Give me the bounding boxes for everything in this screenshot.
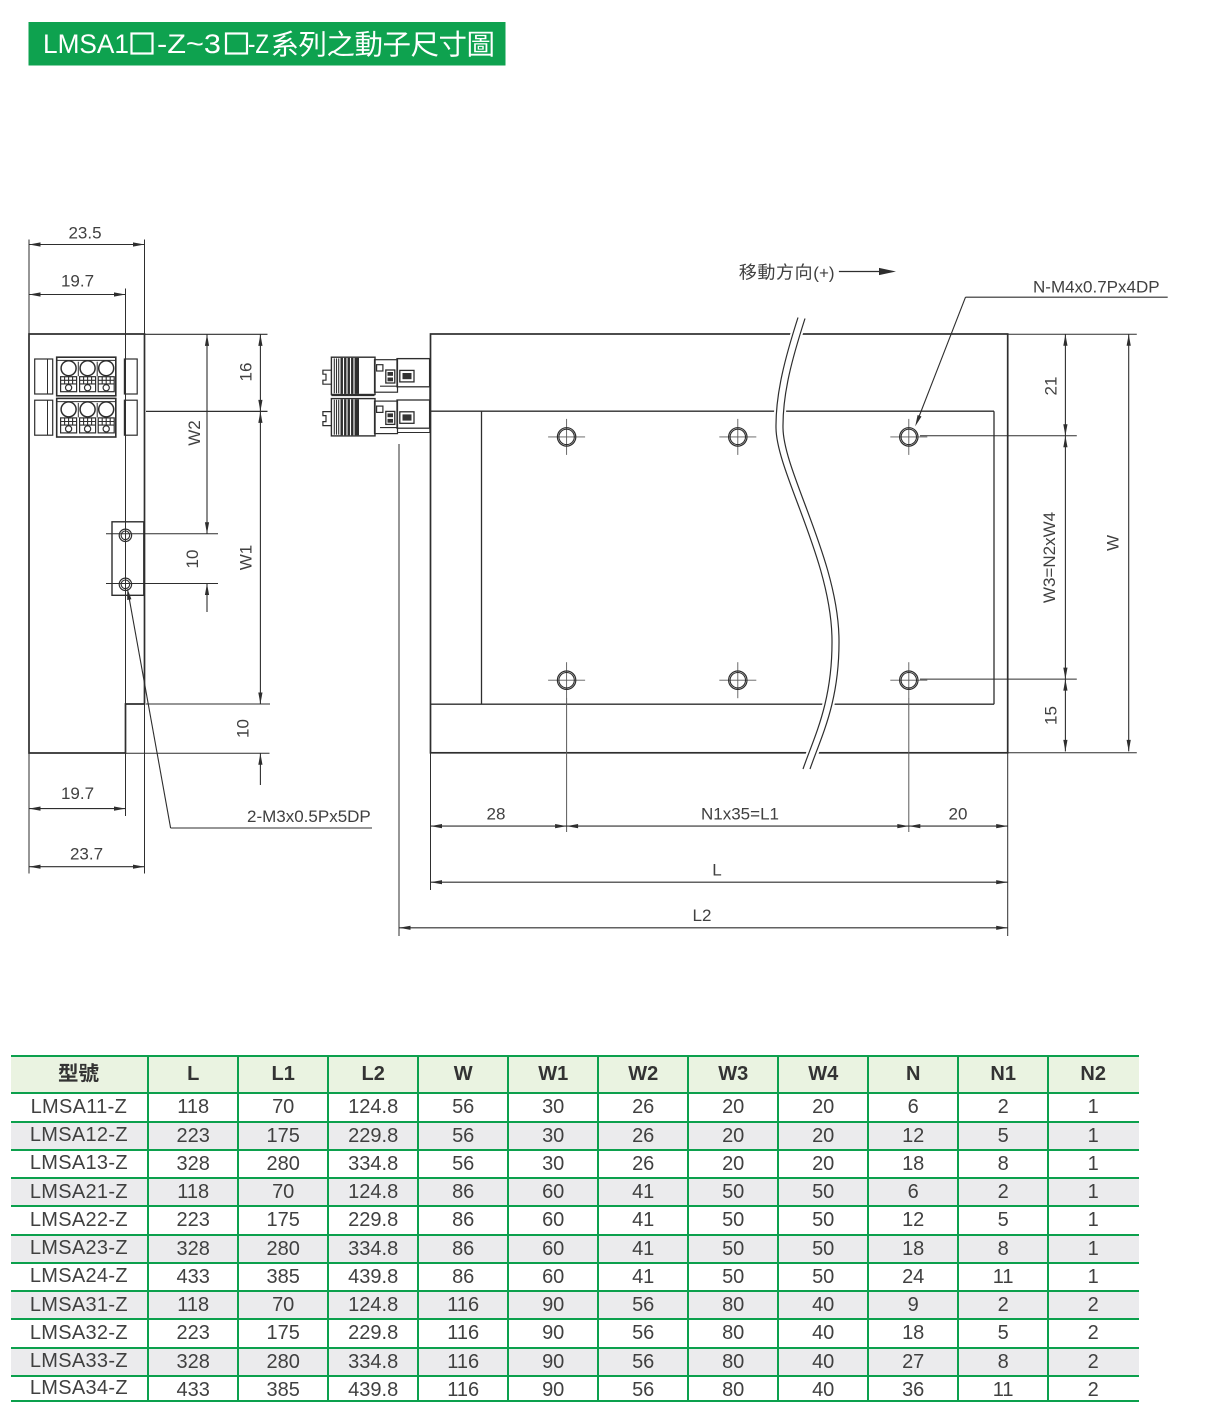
svg-text:10: 10 [234,719,253,738]
svg-text:(+): (+) [813,264,834,283]
svg-text:LMSA1: LMSA1 [43,29,129,59]
svg-text:W2: W2 [185,420,204,446]
svg-text:W: W [1103,535,1122,551]
svg-text:19.7: 19.7 [61,784,94,803]
svg-text:15: 15 [1042,706,1061,725]
svg-text:23.5: 23.5 [68,224,101,243]
svg-text:L: L [712,861,721,880]
svg-text:28: 28 [487,805,506,824]
svg-text:-Z: -Z [248,29,269,59]
svg-text:23.7: 23.7 [70,845,103,864]
svg-text:N-M4x0.7Px4DP: N-M4x0.7Px4DP [1033,278,1160,297]
svg-text:W1: W1 [237,545,256,571]
svg-text:19.7: 19.7 [61,272,94,291]
svg-text:-Z~3: -Z~3 [157,29,221,59]
svg-text:21: 21 [1042,377,1061,396]
svg-text:20: 20 [949,805,968,824]
svg-text:10: 10 [183,550,202,569]
svg-text:16: 16 [237,363,256,382]
svg-text:2-M3x0.5Px5DP: 2-M3x0.5Px5DP [247,807,371,826]
svg-text:L2: L2 [693,906,712,925]
svg-text:W3=N2xW4: W3=N2xW4 [1040,512,1059,603]
svg-text:N1x35=L1: N1x35=L1 [701,805,779,824]
